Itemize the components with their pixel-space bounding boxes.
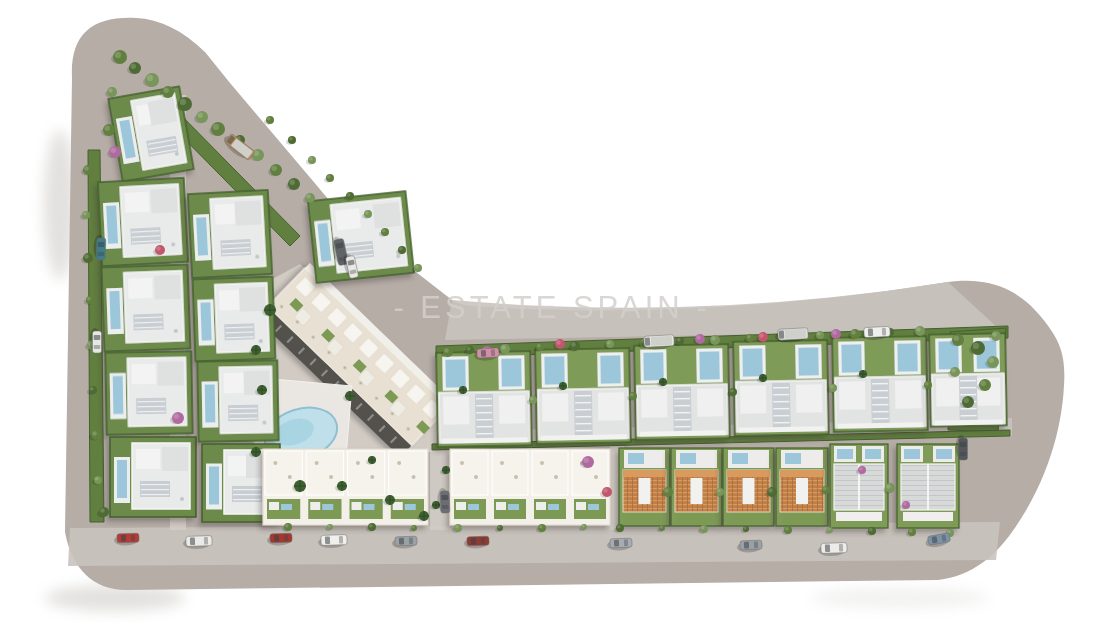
truck-cab-glass xyxy=(779,330,784,338)
tree-highlight xyxy=(84,254,89,259)
vehicle-body xyxy=(93,331,102,353)
roof-furniture xyxy=(594,475,598,479)
townhouse-roof-terrace xyxy=(492,451,528,495)
swimming-pool xyxy=(837,449,853,459)
panel-line xyxy=(233,499,261,500)
tree-highlight xyxy=(198,113,203,118)
tree-highlight xyxy=(95,477,99,481)
white-roof-section xyxy=(743,478,755,504)
stair-rung xyxy=(773,415,789,417)
swimming-pool xyxy=(841,344,861,372)
swimming-pool xyxy=(628,453,644,464)
tree-highlight xyxy=(272,166,277,171)
patio xyxy=(352,502,362,510)
roof-lower-volume xyxy=(373,202,401,229)
roof-wing xyxy=(499,395,525,423)
roof-wing xyxy=(796,384,822,412)
back-lawn xyxy=(782,514,822,524)
duplex-villa-plot xyxy=(929,333,1007,426)
back-lawn xyxy=(729,514,768,524)
tree-highlight xyxy=(556,340,561,345)
back-lawn xyxy=(677,514,716,524)
stair-rung xyxy=(773,401,789,403)
stair-rung xyxy=(575,416,591,418)
roof-lower-volume xyxy=(239,287,266,312)
tree-highlight xyxy=(909,529,913,533)
truck-box xyxy=(651,336,672,346)
tree-highlight xyxy=(530,397,534,401)
rear-window xyxy=(481,537,485,544)
windshield xyxy=(94,335,101,340)
windshield xyxy=(274,535,279,542)
rear-window xyxy=(491,349,495,356)
stair-rung xyxy=(872,390,888,392)
stair-rung xyxy=(872,404,888,406)
tile-roof-houses xyxy=(619,448,828,526)
tree-highlight xyxy=(768,488,773,493)
swimming-pool xyxy=(200,302,211,340)
rear-window xyxy=(409,537,413,544)
truck-box xyxy=(785,329,806,339)
swimming-pool xyxy=(196,217,208,255)
tree-highlight xyxy=(213,124,219,130)
truck-cab-glass xyxy=(645,337,650,345)
tree-highlight xyxy=(925,382,929,386)
swimming-pool xyxy=(117,460,127,498)
tile-roof-house-plot xyxy=(671,448,722,526)
vehicle-body xyxy=(864,326,890,337)
swimming-pool xyxy=(785,453,801,464)
tree-highlight xyxy=(964,398,969,403)
stair-rung xyxy=(872,397,888,399)
patio xyxy=(496,502,506,510)
vehicle-body xyxy=(821,543,847,554)
rear-window xyxy=(131,534,135,541)
masterplan-aerial-render: - ESTATE SPAIN - xyxy=(0,0,1108,623)
tree-highlight xyxy=(539,525,543,529)
tree-highlight xyxy=(467,347,471,351)
mini-pool xyxy=(508,504,519,510)
stair-rung xyxy=(960,394,976,396)
swimming-pool xyxy=(209,467,219,505)
roof-upper-volume xyxy=(124,192,149,213)
tree-highlight xyxy=(951,368,956,373)
tree-highlight xyxy=(444,348,449,353)
duplex-villa-plot xyxy=(436,351,532,447)
swimming-pool xyxy=(699,351,719,379)
tree-highlight xyxy=(630,393,634,397)
rear-window xyxy=(960,452,967,456)
roof-furniture xyxy=(554,475,558,479)
swimming-pool xyxy=(445,359,465,387)
tree-highlight xyxy=(328,525,331,528)
vehicle-body xyxy=(270,533,292,543)
roof-wing xyxy=(839,381,865,409)
villa-plot xyxy=(193,277,276,362)
tree-highlight xyxy=(989,358,994,363)
tree-highlight xyxy=(115,52,121,58)
white-roof-section xyxy=(796,478,808,504)
windshield xyxy=(960,442,967,447)
swimming-pool xyxy=(798,347,818,375)
townhouse-roof-terrace xyxy=(348,451,385,495)
stair-rung xyxy=(873,418,889,420)
stair-rung xyxy=(674,405,690,407)
roof-lower-volume xyxy=(157,361,183,385)
panel-line xyxy=(233,494,261,495)
tree-highlight xyxy=(382,229,386,233)
tile-roof-house-plot xyxy=(776,448,828,526)
tree-highlight xyxy=(785,527,789,531)
tree-highlight xyxy=(92,431,97,436)
tree-highlight xyxy=(290,180,295,185)
tree-highlight xyxy=(981,381,986,386)
stair-rung xyxy=(476,412,492,414)
white-roof-section xyxy=(639,478,651,504)
tree-highlight xyxy=(869,528,873,532)
stair-rung xyxy=(476,426,492,428)
tree-highlight xyxy=(701,526,705,530)
roof-furniture xyxy=(288,475,292,479)
vehicle-body xyxy=(117,533,139,543)
rear-window xyxy=(284,534,288,541)
tree-highlight xyxy=(607,341,611,345)
tree-highlight xyxy=(916,327,921,332)
tree-highlight xyxy=(131,63,136,68)
tree-highlight xyxy=(903,502,907,506)
vehicle-body xyxy=(395,536,417,546)
tree-highlight xyxy=(327,175,331,179)
rear-window xyxy=(882,328,886,336)
duplex-villa-plot xyxy=(832,336,928,432)
tree-highlight xyxy=(992,332,997,337)
duplex-villa-plot xyxy=(733,340,829,436)
rear-window xyxy=(624,539,628,546)
mini-pool xyxy=(548,504,559,510)
rear-window xyxy=(839,544,843,552)
windshield xyxy=(190,537,195,545)
villa-plot xyxy=(308,191,414,283)
stair-rung xyxy=(872,383,888,385)
windshield xyxy=(98,242,105,247)
windshield xyxy=(441,495,448,500)
tree-highlight xyxy=(954,336,959,341)
tree-highlight xyxy=(100,508,105,513)
roof-wing xyxy=(641,389,667,417)
back-lawn xyxy=(625,514,664,524)
rear-window xyxy=(754,541,758,548)
tree-highlight xyxy=(498,526,501,529)
patio xyxy=(310,502,320,510)
mini-pool xyxy=(588,504,599,510)
tree-highlight xyxy=(415,265,419,269)
vehicle-body xyxy=(959,438,968,460)
gable-house-plot xyxy=(830,444,888,528)
swimming-pool xyxy=(904,449,920,459)
tree-highlight xyxy=(108,88,113,93)
roof-ridge xyxy=(623,470,666,477)
patio xyxy=(269,502,279,510)
tree-highlight xyxy=(817,332,821,336)
stair-rung xyxy=(675,426,691,428)
roof-upper-volume xyxy=(128,278,153,299)
vehicle-body xyxy=(440,491,450,513)
windshield xyxy=(744,542,749,549)
vehicle-body xyxy=(321,535,347,546)
roof-ridge xyxy=(727,470,770,477)
mini-pool xyxy=(322,504,333,510)
rear-window xyxy=(94,345,101,349)
roof-furniture xyxy=(273,461,277,465)
rear-window xyxy=(97,252,104,256)
stair-rung xyxy=(773,394,789,396)
swimming-pool xyxy=(936,449,952,459)
roof-furniture xyxy=(397,461,401,465)
stair-rung xyxy=(575,395,591,397)
roof-wing xyxy=(542,393,568,421)
stair-rung xyxy=(575,409,591,411)
swimming-pool xyxy=(109,291,120,329)
roof-furniture xyxy=(474,475,478,479)
mini-pool xyxy=(468,504,479,510)
tree-highlight xyxy=(267,117,271,121)
tree-highlight xyxy=(105,126,110,131)
stair-rung xyxy=(476,419,492,421)
swimming-pool xyxy=(742,348,762,376)
house-walls xyxy=(836,512,882,521)
villa-plot xyxy=(98,178,188,266)
stair-rung xyxy=(960,380,976,382)
ac-unit xyxy=(180,497,184,501)
roof-wing xyxy=(936,378,962,406)
mini-pool xyxy=(281,504,292,510)
tree-highlight xyxy=(90,387,94,391)
tree-highlight xyxy=(664,488,669,493)
roof-wing xyxy=(740,385,766,413)
swimming-pool xyxy=(600,355,620,383)
roof-furniture xyxy=(540,461,544,465)
roof-wing xyxy=(598,392,624,420)
tree-highlight xyxy=(571,342,576,347)
tree-highlight xyxy=(696,335,701,340)
roof-furniture xyxy=(315,461,319,465)
tree-highlight xyxy=(823,487,827,491)
roof-furniture xyxy=(460,461,464,465)
swimming-pool xyxy=(897,343,917,371)
roof-wing xyxy=(443,396,469,424)
tree-highlight xyxy=(289,137,293,141)
villa-plot xyxy=(197,360,278,441)
roof-wing xyxy=(697,388,723,416)
tree-highlight xyxy=(111,148,116,153)
vehicle-body xyxy=(477,348,500,359)
screenshot-root: - ESTATE SPAIN - xyxy=(0,0,1108,623)
tree-highlight xyxy=(886,484,891,489)
tree-highlight xyxy=(147,75,153,81)
tree-highlight xyxy=(711,336,716,341)
windshield xyxy=(471,538,476,545)
roof-upper-volume xyxy=(335,208,361,230)
panel-line xyxy=(233,489,261,490)
tree-highlight xyxy=(180,99,186,105)
stair-rung xyxy=(674,398,690,400)
tree-highlight xyxy=(84,166,89,171)
roof-furniture xyxy=(356,461,360,465)
vehicle-body xyxy=(467,536,489,546)
tree-highlight xyxy=(603,488,608,493)
tree-highlight xyxy=(747,335,751,339)
stair-rung xyxy=(575,423,591,425)
roof-furniture xyxy=(370,475,374,479)
patio xyxy=(393,502,403,510)
stair-rung xyxy=(576,430,592,432)
stair-rung xyxy=(773,387,789,389)
roof-furniture xyxy=(514,475,518,479)
roof-lower-volume xyxy=(234,200,261,225)
tree-highlight xyxy=(87,297,91,301)
mini-pool xyxy=(405,504,416,510)
tree-highlight xyxy=(828,528,831,531)
tile-roof-house-plot xyxy=(723,448,774,526)
stair-rung xyxy=(674,419,690,421)
tree-highlight xyxy=(309,157,313,161)
tree-highlight xyxy=(174,414,179,419)
duplex-villa-plot xyxy=(634,344,730,440)
stair-rung xyxy=(872,411,888,413)
tile-roof-house-plot xyxy=(619,448,670,526)
tree-highlight xyxy=(677,338,681,342)
roof-upper-volume xyxy=(131,364,155,384)
swimming-pool xyxy=(732,453,748,464)
stair-rung xyxy=(476,405,492,407)
villa-plot xyxy=(188,190,272,278)
villa-plot xyxy=(102,265,191,352)
tree-highlight xyxy=(973,343,979,349)
stair-rung xyxy=(476,398,492,400)
road-lane1 xyxy=(430,445,450,530)
tree-highlight xyxy=(347,193,351,197)
patio xyxy=(576,502,586,510)
tree-highlight xyxy=(455,525,459,529)
tree-highlight xyxy=(399,247,403,251)
windshield xyxy=(325,536,330,544)
tree-highlight xyxy=(859,467,863,471)
vehicle-body xyxy=(186,536,212,547)
panel-line xyxy=(141,494,169,495)
windshield xyxy=(399,538,404,545)
windshield xyxy=(825,544,830,552)
tree-highlight xyxy=(164,88,169,93)
house-walls xyxy=(903,512,953,521)
tree-highlight xyxy=(582,525,585,528)
stair-rung xyxy=(674,391,690,393)
roof-ridge xyxy=(927,464,929,510)
mini-pool xyxy=(364,504,375,510)
roof-furniture xyxy=(412,475,416,479)
tree-highlight xyxy=(832,330,837,335)
townhouse-roof-terrace xyxy=(389,451,426,495)
rear-window xyxy=(204,537,208,545)
roof-lower-volume xyxy=(150,188,177,213)
swimming-pool xyxy=(680,453,696,464)
tree-highlight xyxy=(759,333,764,338)
swimming-pool xyxy=(106,205,118,243)
rear-window xyxy=(339,536,343,544)
stair-rung xyxy=(774,422,790,424)
swimming-pool xyxy=(205,384,216,422)
roof-wing xyxy=(895,380,921,408)
villa-plot xyxy=(110,437,196,517)
windshield xyxy=(868,328,873,336)
stair-rung xyxy=(674,412,690,414)
tree-highlight xyxy=(617,525,621,529)
tree-highlight xyxy=(717,489,721,493)
tree-highlight xyxy=(83,212,87,216)
windshield xyxy=(614,540,619,547)
roof-furniture xyxy=(500,461,504,465)
rear-window xyxy=(442,505,449,509)
tree-highlight xyxy=(306,194,311,199)
tree-highlight xyxy=(851,330,856,335)
tree-highlight xyxy=(285,524,289,528)
stair-rung xyxy=(773,408,789,410)
stair-rung xyxy=(960,408,976,410)
roof-lower-volume xyxy=(154,275,181,300)
windshield xyxy=(481,350,486,357)
vehicle-body xyxy=(740,540,762,550)
tree-highlight xyxy=(730,389,734,393)
tree-highlight xyxy=(584,458,589,463)
swimming-pool xyxy=(544,356,564,384)
swimming-pool xyxy=(643,352,663,380)
tree-highlight xyxy=(412,526,415,529)
windshield xyxy=(121,535,126,542)
gable-house-plot xyxy=(897,444,959,528)
roof-upper-volume xyxy=(136,449,160,469)
roof-ridge xyxy=(675,470,718,477)
tree-highlight xyxy=(660,526,663,529)
tree-highlight xyxy=(830,385,834,389)
tree-highlight xyxy=(744,527,747,530)
tree-highlight xyxy=(537,344,541,348)
roof-furniture xyxy=(329,475,333,479)
panel-line xyxy=(141,489,169,490)
duplex-villa-plot xyxy=(535,348,631,444)
swimming-pool xyxy=(113,376,124,414)
stair-rung xyxy=(960,387,976,389)
tree-highlight xyxy=(369,524,373,528)
watermark-text: - ESTATE SPAIN - xyxy=(393,290,710,325)
roof-lower-volume xyxy=(147,98,177,126)
tree-highlight xyxy=(501,345,506,350)
stair-rung xyxy=(575,402,591,404)
vehicle-body xyxy=(610,538,632,548)
tree-highlight xyxy=(365,211,369,215)
patio xyxy=(456,502,466,510)
swimming-pool xyxy=(865,449,881,459)
tree-highlight xyxy=(156,246,161,251)
swimming-pool xyxy=(501,358,521,386)
roof-ridge xyxy=(780,470,824,477)
panel-line xyxy=(141,484,169,485)
townhouse-roof-terrace xyxy=(452,451,488,495)
stair-rung xyxy=(477,433,493,435)
white-roof-section xyxy=(691,478,703,504)
roof-lower-volume xyxy=(162,447,188,471)
townhouse-roof-terrace xyxy=(532,451,568,495)
patio xyxy=(536,502,546,510)
vehicle-body xyxy=(96,238,106,260)
